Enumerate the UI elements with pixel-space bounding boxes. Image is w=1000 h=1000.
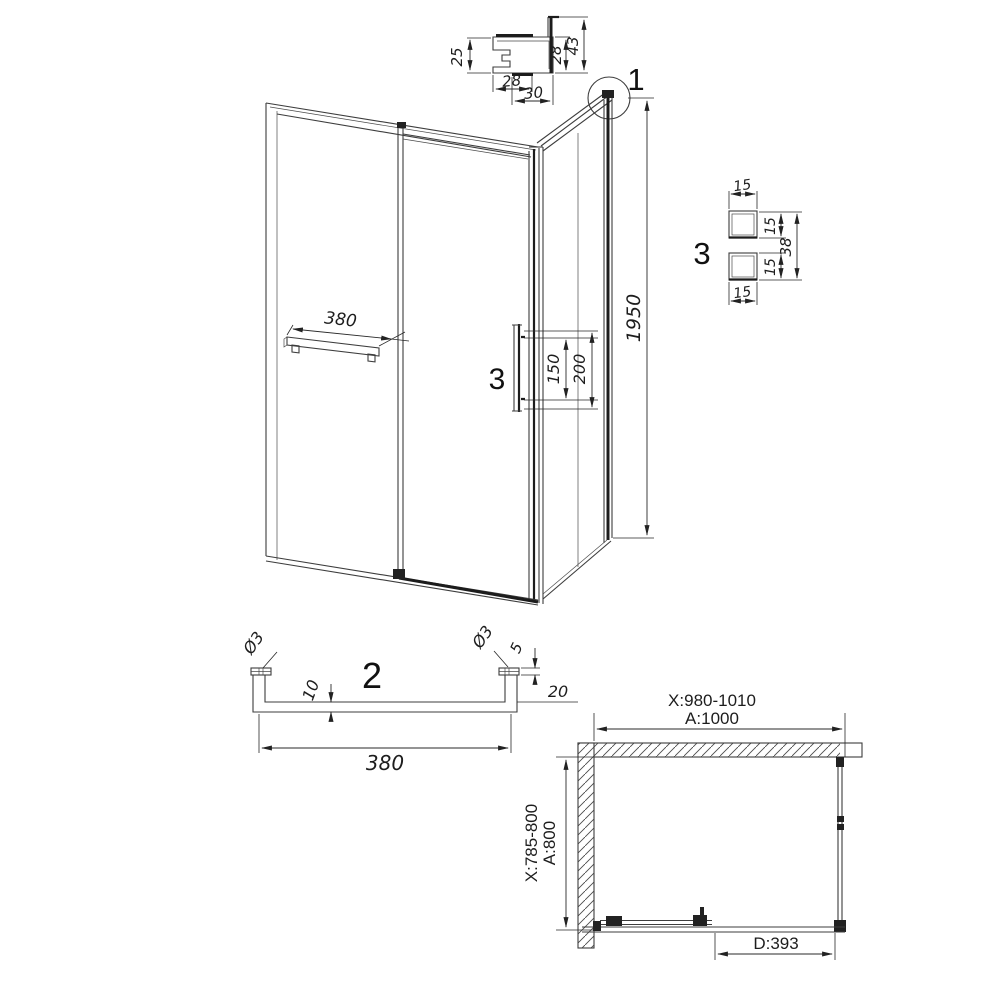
dim-screw-dia-right: Ø3 (468, 622, 497, 652)
dim-screw-dia-left: Ø3 (239, 628, 268, 658)
dim-handle-length: 200 (570, 354, 589, 385)
callout-detail-1: 1 (588, 62, 645, 119)
plan-roller-left (606, 916, 622, 926)
dim-profile-outer-height: 43 (564, 36, 582, 55)
side-glass-top-edge (543, 100, 612, 151)
dim-bracket-depth: 20 (548, 682, 568, 701)
dim-overall-height: 1950 (623, 294, 645, 342)
wall-profile-detail: 25 28 30 28 43 (448, 17, 588, 105)
dim-cap-height: 5 (506, 640, 526, 656)
wall-post-cap (602, 90, 614, 98)
dim-profile-bottom-width: 28 (501, 71, 522, 91)
dim-depth-nominal: A:800 (540, 821, 559, 865)
plan-wall-fitting (837, 816, 844, 822)
door-top-guide (403, 134, 530, 155)
callout-3-front-label: 3 (489, 363, 506, 396)
dim-bar-length: 380 (366, 751, 404, 775)
door-bottom-track (399, 578, 538, 602)
callout-2-label: 2 (362, 655, 382, 696)
dim-handle-top-width: 15 (733, 177, 753, 195)
plan-view: X:980-1010 A:1000 X:785-800 A:800 D:393 (522, 691, 862, 960)
plan-corner-bracket-bottom (834, 920, 846, 932)
dim-profile-bottom-outer-width: 30 (523, 83, 544, 103)
front-isometric-view: 380 150 200 3 1950 (266, 90, 654, 605)
towel-bar (284, 337, 379, 362)
back-wall-hatch (578, 743, 840, 757)
dim-handle-overall-depth: 38 (777, 237, 795, 256)
callout-1-label: 1 (627, 62, 644, 97)
side-wall-hatch (578, 743, 594, 948)
dim-depth-adjustment-range: X:785-800 (522, 804, 541, 882)
towel-bar-detail: 2 Ø3 Ø3 5 10 20 380 (239, 622, 578, 775)
dim-handle-bottom-width: 15 (733, 284, 753, 302)
plan-door-stop (700, 907, 704, 917)
towel-bar-profile (253, 675, 517, 712)
handle-section-detail: 3 15 15 38 15 15 (693, 177, 802, 305)
dim-bar-thickness: 10 (298, 677, 323, 703)
door-handle (512, 324, 525, 412)
dim-width-nominal: A:1000 (685, 709, 739, 728)
side-glass-bottom-edge (543, 541, 611, 599)
handle-section-top (729, 211, 757, 238)
shower-enclosure-drawing: 25 28 30 28 43 1 (0, 0, 1000, 1000)
dim-handle-bottom-depth: 15 (763, 258, 779, 276)
dim-towel-bar-length: 380 (323, 308, 357, 331)
dim-width-adjustment-range: X:980-1010 (668, 691, 756, 710)
top-support-bar (537, 93, 605, 143)
dim-profile-inner-height: 28 (547, 45, 565, 64)
profile-outline (493, 37, 553, 73)
technical-drawing-canvas: 25 28 30 28 43 1 (0, 0, 1000, 1000)
dim-handle-top-depth: 15 (763, 217, 779, 235)
door-guide-bracket (397, 122, 406, 128)
bottom-guide-block (393, 569, 405, 579)
handle-section-bottom (729, 253, 757, 280)
plan-corner-bracket-top (836, 757, 844, 767)
callout-3-detail-label: 3 (693, 236, 710, 271)
dim-profile-height: 25 (448, 47, 466, 66)
dim-door-opening: D:393 (753, 934, 798, 953)
dim-handle-mount-spacing: 150 (544, 354, 563, 385)
